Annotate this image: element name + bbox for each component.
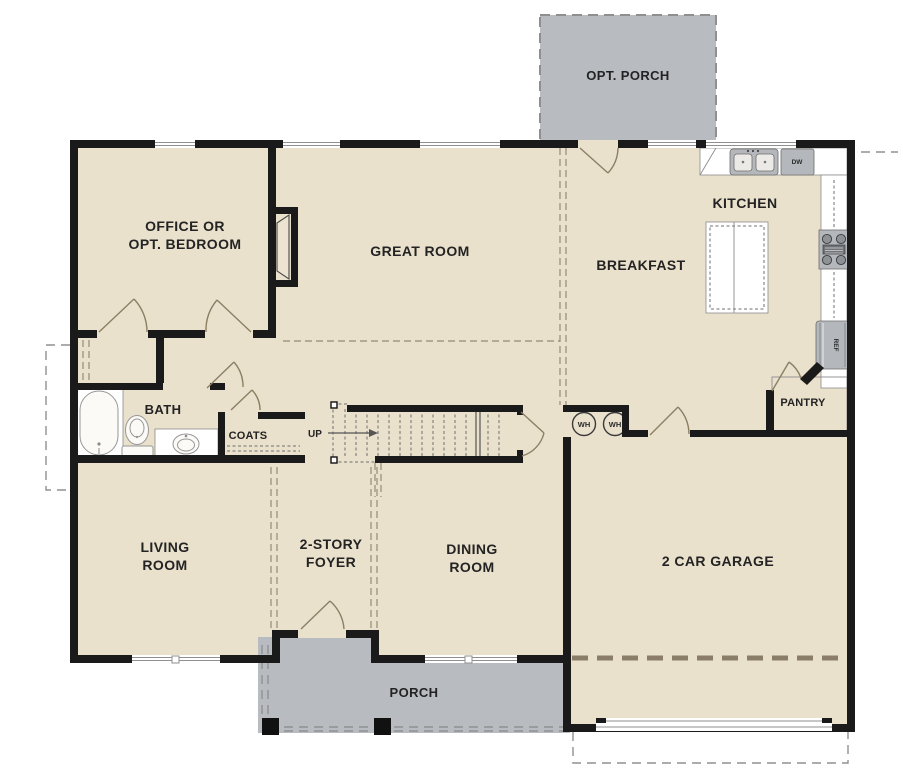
dishwasher: DW [781, 149, 814, 175]
coats-label: COATS [229, 430, 268, 442]
kitchen-label: KITCHEN [712, 195, 777, 211]
refrigerator-label: REF [832, 339, 839, 352]
dining-room-label-line1: DINING [446, 541, 497, 557]
kitchen-island [706, 222, 768, 313]
kitchen-sink [730, 149, 778, 175]
stairs-up-label: UP [308, 429, 322, 440]
floor-plan-drawing: DW REF [0, 0, 903, 768]
living-room-label-line2: ROOM [142, 557, 187, 573]
office-label-line2: OPT. BEDROOM [129, 236, 242, 252]
driveway-dashed [573, 732, 848, 763]
office-label-line1: OFFICE OR [145, 218, 225, 234]
breakfast-label: BREAKFAST [596, 257, 685, 273]
dishwasher-label: DW [792, 159, 804, 166]
garage-label: 2 CAR GARAGE [662, 553, 774, 569]
optional-bumpout-dashed [46, 345, 70, 490]
pantry-label: PANTRY [780, 397, 826, 409]
garage-door [596, 718, 832, 731]
dining-room-label-line2: ROOM [449, 559, 494, 575]
refrigerator: REF [816, 321, 849, 369]
range-stove [819, 230, 849, 269]
living-room-label-line1: LIVING [140, 539, 189, 555]
foyer-label-line2: FOYER [306, 554, 356, 570]
bathroom-vanity [155, 429, 218, 458]
great-room-label: GREAT ROOM [370, 243, 469, 259]
opt-porch-label: OPT. PORCH [586, 68, 669, 83]
media-niche [277, 215, 289, 279]
porch-label: PORCH [390, 685, 439, 700]
water-heater-2-label: WH [609, 420, 622, 429]
floor-plan-page: DW REF [0, 0, 903, 768]
foyer-label-line1: 2-STORY [300, 536, 363, 552]
bathtub [75, 388, 123, 458]
bath-label: BATH [145, 402, 182, 417]
water-heater-1-label: WH [578, 420, 591, 429]
